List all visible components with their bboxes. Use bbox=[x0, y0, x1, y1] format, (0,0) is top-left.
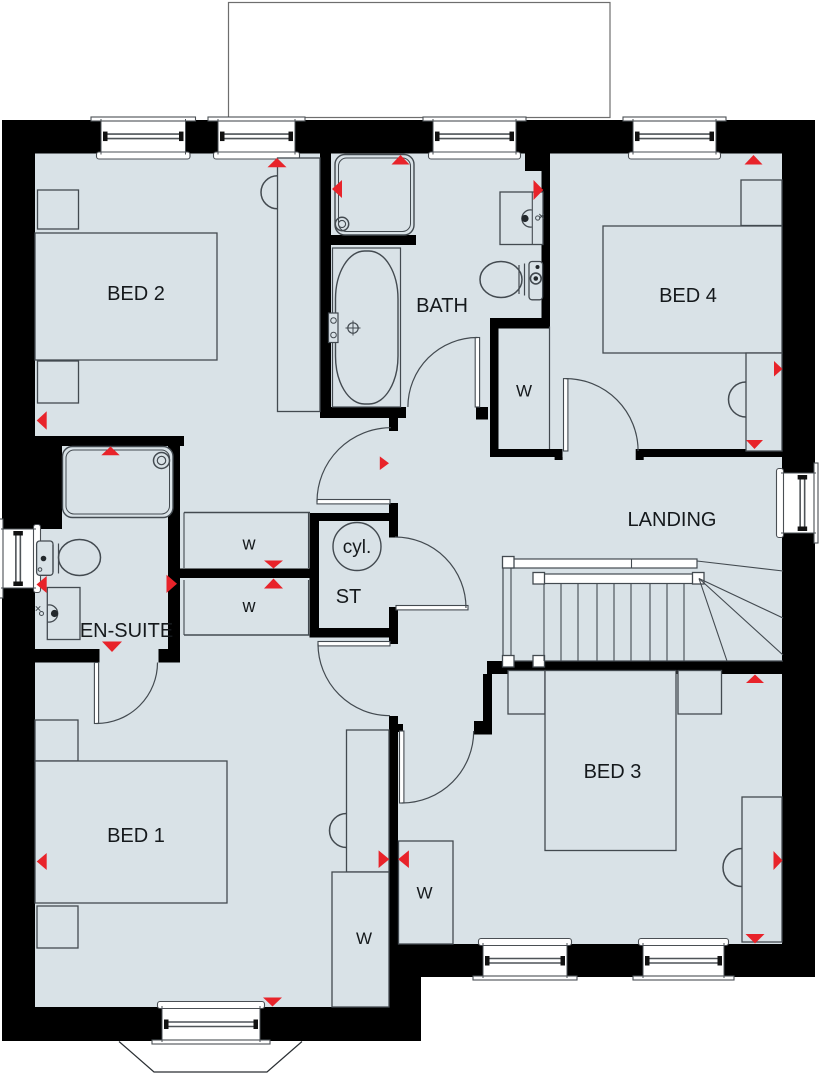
svg-text:W: W bbox=[416, 884, 432, 903]
svg-text:W: W bbox=[356, 929, 372, 948]
svg-text:BED 1: BED 1 bbox=[107, 825, 165, 847]
svg-text:w: w bbox=[242, 534, 257, 554]
svg-text:EN-SUITE: EN-SUITE bbox=[80, 620, 173, 642]
svg-text:BED 3: BED 3 bbox=[584, 761, 642, 783]
svg-text:BATH: BATH bbox=[416, 295, 468, 317]
svg-text:cyl.: cyl. bbox=[343, 537, 372, 558]
svg-text:BED 4: BED 4 bbox=[659, 285, 717, 307]
svg-text:w: w bbox=[242, 596, 257, 616]
svg-text:ST: ST bbox=[336, 586, 362, 608]
svg-text:LANDING: LANDING bbox=[628, 509, 717, 531]
svg-text:W: W bbox=[516, 382, 532, 401]
svg-text:BED 2: BED 2 bbox=[107, 283, 165, 305]
